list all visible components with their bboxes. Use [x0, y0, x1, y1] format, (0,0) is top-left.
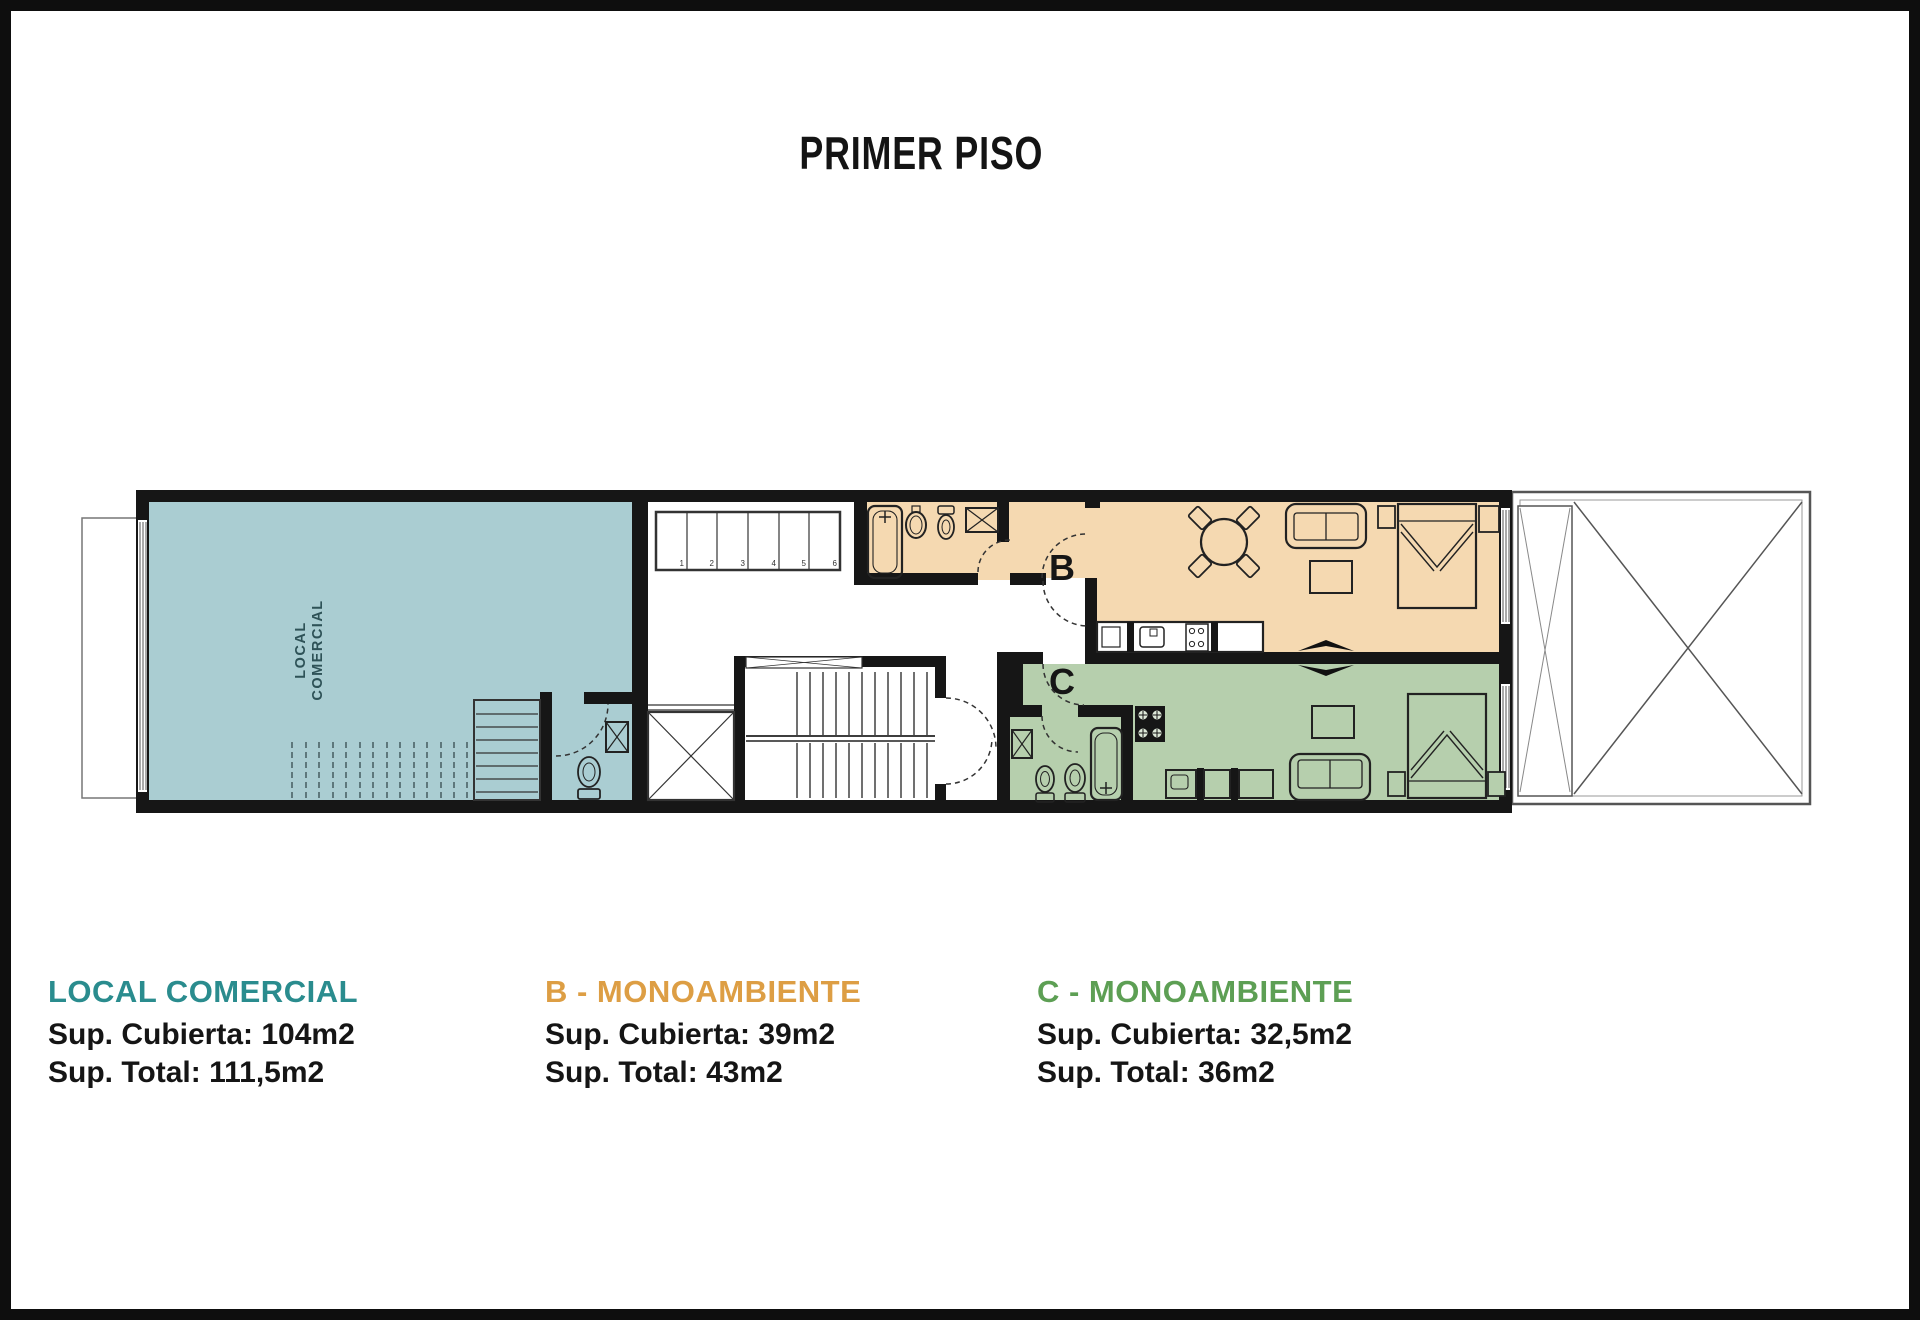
coffee-table-icon — [1310, 561, 1352, 593]
unit-b-label: B — [1049, 547, 1075, 588]
nightstand-icon — [1388, 772, 1405, 796]
local-label-line1: LOCAL — [293, 621, 309, 678]
legend-title-unit-b: B - MONOAMBIENTE — [545, 974, 861, 1010]
legend-covered-unit-c: Sup. Cubierta: 32,5m2 — [1037, 1016, 1353, 1054]
floorplan-drawing: LOCAL COMERCIAL — [0, 0, 1920, 1320]
legend-total-local: Sup. Total: 111,5m2 — [48, 1054, 358, 1092]
nightstand-icon — [1378, 506, 1395, 528]
floorplan-canvas: PRIMER PISO — [0, 0, 1920, 1320]
elevator-door-icon — [746, 657, 862, 668]
legend-total-unit-c: Sup. Total: 36m2 — [1037, 1054, 1353, 1092]
locker-number: 5 — [802, 559, 807, 568]
nightstand-icon — [1488, 772, 1505, 796]
locker-number: 1 — [680, 559, 685, 568]
locker-number: 2 — [710, 559, 715, 568]
legend-unit-c: C - MONOAMBIENTE Sup. Cubierta: 32,5m2 S… — [1037, 974, 1353, 1092]
kitchen-sink-icon — [1166, 770, 1196, 798]
window-unit-b-icon — [1501, 508, 1510, 624]
locker-number: 4 — [772, 559, 777, 568]
legend-covered-unit-b: Sup. Cubierta: 39m2 — [545, 1016, 861, 1054]
legend-title-unit-c: C - MONOAMBIENTE — [1037, 974, 1353, 1010]
sofa-icon — [1286, 504, 1366, 548]
legend-unit-b: B - MONOAMBIENTE Sup. Cubierta: 39m2 Sup… — [545, 974, 861, 1092]
legend-title-local: LOCAL COMERCIAL — [48, 974, 358, 1010]
locker-number: 6 — [833, 559, 838, 568]
unit-b-kitchen — [1097, 622, 1263, 652]
legend-covered-local: Sup. Cubierta: 104m2 — [48, 1016, 358, 1054]
counter-icon — [1204, 770, 1230, 798]
sofa-icon — [1290, 754, 1370, 800]
legend-local-comercial: LOCAL COMERCIAL Sup. Cubierta: 104m2 Sup… — [48, 974, 358, 1092]
terrace — [1512, 492, 1810, 804]
locker-number: 3 — [741, 559, 746, 568]
local-label-line2: COMERCIAL — [310, 599, 326, 700]
stove-icon — [1135, 706, 1165, 742]
counter-icon — [1239, 770, 1273, 798]
legend-total-unit-b: Sup. Total: 43m2 — [545, 1054, 861, 1092]
elevator-shaft — [648, 705, 734, 800]
lockers: 1 2 3 4 5 6 — [656, 512, 840, 570]
unit-c-kitchen — [1166, 768, 1273, 800]
side-table-icon — [1312, 706, 1354, 738]
nightstand-icon — [1479, 506, 1499, 532]
storefront-window-icon — [138, 520, 147, 792]
unit-c-label: C — [1049, 661, 1075, 702]
